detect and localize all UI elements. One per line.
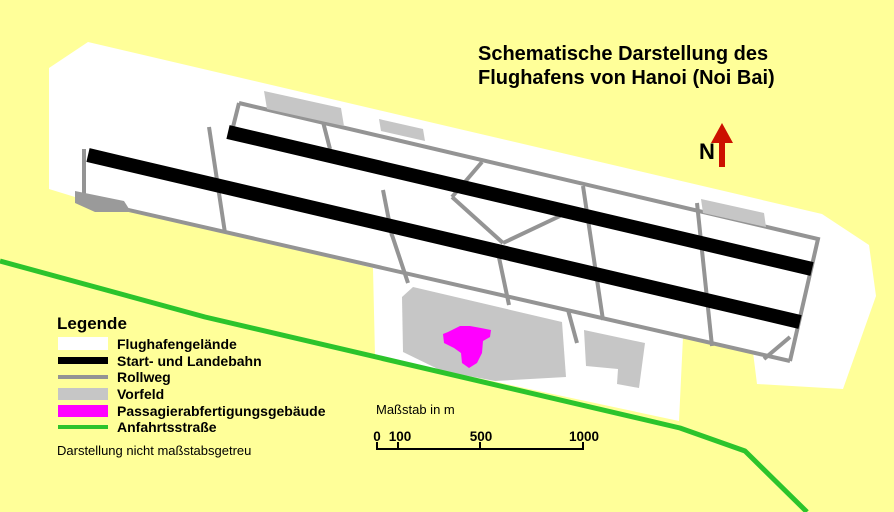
legend-label: Rollweg [117, 369, 171, 385]
airport-schematic-map: Schematische Darstellung des Flughafens … [0, 0, 894, 512]
legend-note: Darstellung nicht maßstabsgetreu [57, 443, 251, 458]
legend-label: Start- und Landebahn [117, 353, 262, 369]
scalebar-tick-label: 1000 [569, 429, 599, 444]
scalebar-tick-label: 500 [470, 429, 493, 444]
legend-swatch-light-gray-area [58, 388, 108, 400]
legend-row: Passagierabfertigungsgebäude [58, 403, 326, 419]
legend-row: Flughafengelände [58, 336, 237, 352]
legend-label: Passagierabfertigungsgebäude [117, 403, 326, 419]
legend-swatch-gray-line [58, 375, 108, 379]
scalebar-tick-label: 0 [373, 429, 381, 444]
legend-swatch-magenta-area [58, 405, 108, 417]
map-svg: Schematische Darstellung des Flughafens … [0, 0, 894, 512]
legend-label: Anfahrtsstraße [117, 419, 217, 435]
scalebar-label: Maßstab in m [376, 402, 455, 417]
legend-swatch-white-area [58, 337, 108, 350]
legend-title: Legende [57, 314, 127, 333]
legend-swatch-black-thick-line [58, 357, 108, 364]
legend-swatch-green-line [58, 425, 108, 429]
map-title-line1: Schematische Darstellung des [478, 43, 768, 65]
scalebar-tick-label: 100 [389, 429, 412, 444]
map-title-line2: Flughafens von Hanoi (Noi Bai) [478, 67, 775, 89]
legend-label: Flughafengelände [117, 336, 237, 352]
legend-label: Vorfeld [117, 386, 164, 402]
